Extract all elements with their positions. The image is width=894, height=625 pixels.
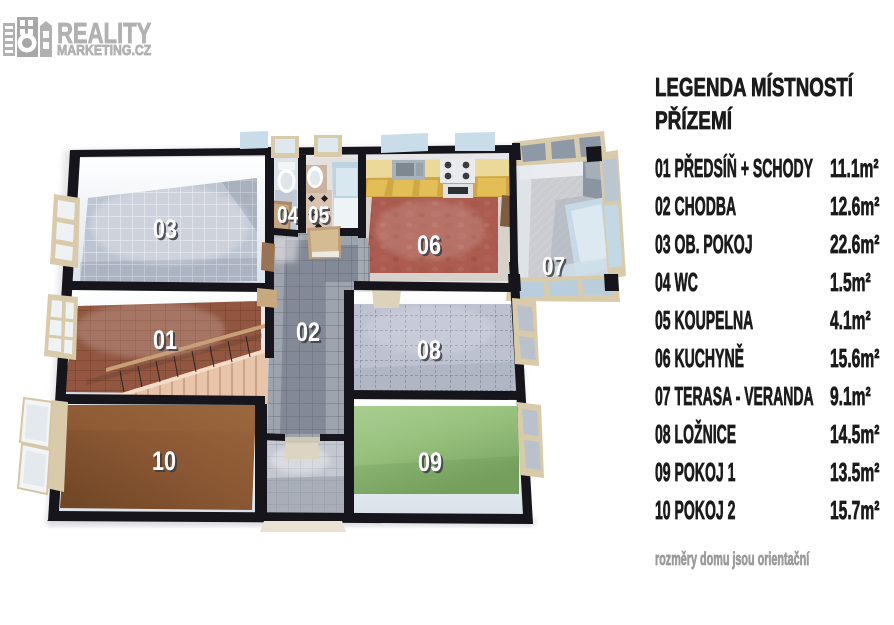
svg-text:03: 03: [153, 215, 177, 245]
svg-text:09: 09: [418, 448, 442, 478]
svg-text:02: 02: [296, 318, 320, 348]
svg-text:01: 01: [153, 326, 177, 356]
svg-text:08: 08: [417, 336, 441, 366]
svg-text:07: 07: [542, 252, 565, 281]
svg-text:06: 06: [417, 231, 441, 261]
svg-text:05: 05: [308, 201, 329, 229]
svg-text:04: 04: [277, 201, 298, 229]
svg-text:10: 10: [152, 447, 176, 477]
